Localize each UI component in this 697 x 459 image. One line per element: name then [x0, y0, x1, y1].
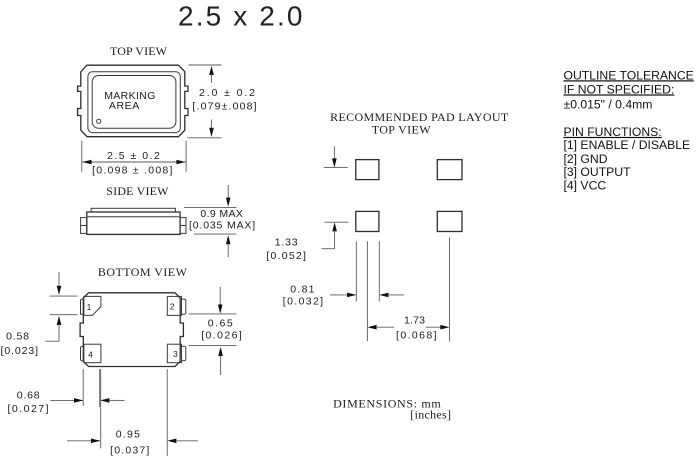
svg-text:±0.015" / 0.4mm: ±0.015" / 0.4mm — [564, 97, 653, 111]
svg-text:0.65: 0.65 — [208, 318, 233, 330]
svg-text:[0.098 ± .008]: [0.098 ± .008] — [92, 164, 172, 176]
svg-text:1.33: 1.33 — [275, 237, 298, 249]
svg-text:[1] ENABLE / DISABLE: [1] ENABLE / DISABLE — [564, 138, 691, 152]
svg-text:0.58: 0.58 — [6, 330, 29, 342]
svg-text:BOTTOM VIEW: BOTTOM VIEW — [98, 265, 188, 279]
svg-text:[4] VCC: [4] VCC — [564, 178, 607, 192]
svg-text:2.0 ± 0.2: 2.0 ± 0.2 — [199, 87, 255, 99]
svg-text:1: 1 — [87, 302, 92, 312]
svg-text:1.73: 1.73 — [404, 315, 425, 327]
svg-text:[0.037]: [0.037] — [110, 444, 149, 456]
svg-text:[inches]: [inches] — [410, 408, 451, 422]
svg-text:0.68: 0.68 — [17, 390, 40, 402]
svg-text:RECOMMENDED PAD LAYOUT: RECOMMENDED PAD LAYOUT — [330, 110, 509, 124]
svg-text:[0.027]: [0.027] — [8, 403, 49, 415]
svg-text:OUTLINE TOLERANCE: OUTLINE TOLERANCE — [564, 68, 694, 82]
svg-text:2.5 x 2.0: 2.5 x 2.0 — [178, 0, 303, 31]
svg-text:SIDE VIEW: SIDE VIEW — [106, 184, 169, 198]
svg-text:[0.026]: [0.026] — [201, 330, 242, 342]
svg-text:[0.068]: [0.068] — [396, 330, 437, 342]
svg-text:TOP VIEW: TOP VIEW — [372, 123, 432, 137]
svg-text:[.079±.008]: [.079±.008] — [192, 101, 256, 113]
svg-text:[3] OUTPUT: [3] OUTPUT — [564, 165, 632, 179]
svg-text:PIN FUNCTIONS:: PIN FUNCTIONS: — [564, 125, 662, 139]
svg-text:2: 2 — [170, 302, 175, 312]
svg-text:[0.023]: [0.023] — [1, 345, 39, 357]
svg-text:3: 3 — [173, 349, 178, 359]
svg-text:0.95: 0.95 — [116, 429, 140, 441]
svg-text:2.5 ± 0.2: 2.5 ± 0.2 — [107, 150, 160, 162]
svg-text:[2] GND: [2] GND — [564, 152, 608, 166]
svg-text:IF NOT SPECIFIED:: IF NOT SPECIFIED: — [564, 82, 675, 96]
svg-text:0.81: 0.81 — [290, 283, 314, 295]
svg-text:TOP VIEW: TOP VIEW — [110, 44, 168, 58]
svg-text:[0.035 MAX]: [0.035 MAX] — [189, 220, 255, 232]
svg-text:0.9 MAX: 0.9 MAX — [200, 208, 243, 220]
svg-text:4: 4 — [88, 350, 93, 360]
svg-text:[0.052]: [0.052] — [266, 250, 306, 262]
svg-text:AREA: AREA — [109, 100, 139, 112]
svg-text:[0.032]: [0.032] — [283, 296, 323, 308]
